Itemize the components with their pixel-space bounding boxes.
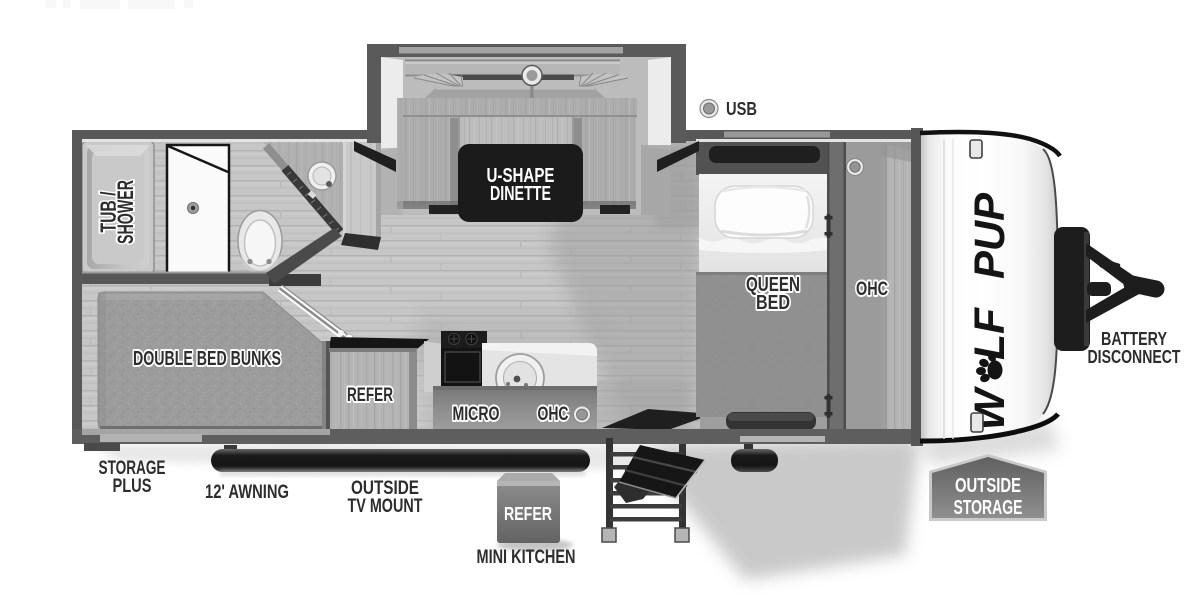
svg-text:MICRO: MICRO — [453, 404, 500, 425]
svg-text:OUTSIDE: OUTSIDE — [955, 475, 1021, 497]
svg-text:DINETTE: DINETTE — [490, 183, 551, 205]
svg-text:PLUS: PLUS — [113, 476, 152, 497]
svg-text:12' AWNING: 12' AWNING — [205, 482, 289, 503]
svg-text:MINI KITCHEN: MINI KITCHEN — [477, 547, 576, 568]
svg-text:OHC: OHC — [538, 404, 569, 425]
svg-text:SHOWER: SHOWER — [113, 180, 138, 244]
svg-text:PUP: PUP — [966, 193, 1014, 279]
svg-text:DISCONNECT: DISCONNECT — [1088, 346, 1182, 367]
svg-text:OHC: OHC — [856, 279, 888, 300]
svg-text:DOUBLE BED BUNKS: DOUBLE BED BUNKS — [133, 348, 281, 370]
svg-text:TV MOUNT: TV MOUNT — [348, 496, 423, 517]
svg-text:REFER: REFER — [504, 504, 552, 524]
svg-text:LF: LF — [966, 306, 1014, 360]
svg-text:BED: BED — [756, 292, 790, 314]
svg-text:REFER: REFER — [347, 385, 393, 406]
svg-text:STORAGE: STORAGE — [954, 497, 1023, 519]
svg-text:USB: USB — [726, 98, 757, 119]
